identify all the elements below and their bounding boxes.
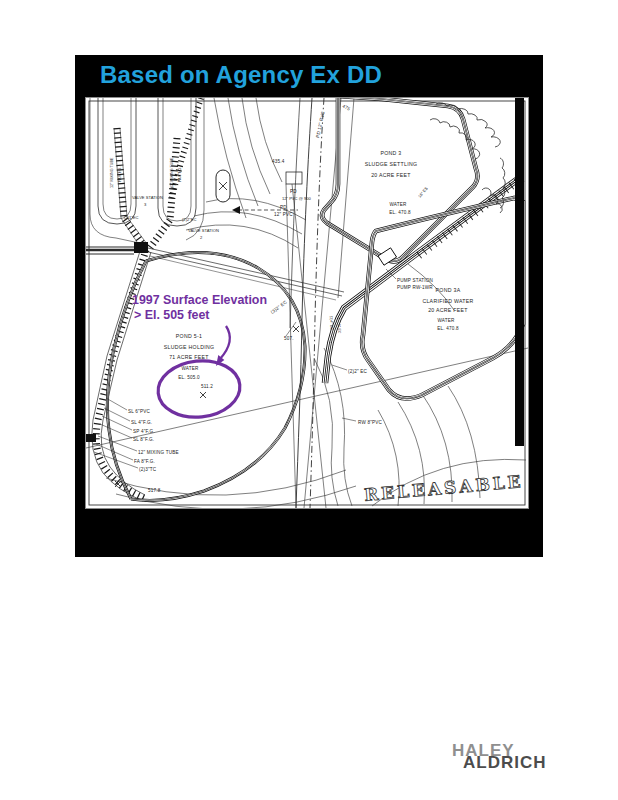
pond3-name-label: POND 3 [380,150,401,156]
pond51-water-label: WATER [181,366,199,371]
rw8pvc-label: RW 8"PVC [358,420,383,425]
es16-label: 16" ES [417,186,429,199]
pond3a-capacity-label: 20 ACRE FEET [428,307,468,313]
ec22-label: (2)2"EC [182,217,196,222]
valve-station-2-number: 2 [200,235,203,240]
ec21-label: (2)1"EC [124,215,138,220]
cell1-mixing-tube-label: 12" MIXING TUBE [110,157,114,188]
pipe-sl6-label: SL 6"PVC [128,409,150,414]
pond3-water-label: WATER [389,202,407,207]
spot-507-label: 507. [284,336,294,341]
pond51-spot-elevation-label: 511.2 [201,384,213,389]
releasable-stamp: RELEASABLE [363,471,524,505]
pd-box-label: PD [290,189,297,194]
pd-12pvc-label: 12" PVC [274,212,293,217]
contour-475-label: 475 [342,103,352,111]
site-plan-map: POND 3 SLUDGE SETTLING 20 ACRE FEET WATE… [85,97,529,509]
pipe-sl4-label: SL 4"F.G. [131,420,152,425]
pond51-elevation-label: EL. 505.0 [178,375,200,380]
logo-line2: ALDRICH [463,754,547,771]
ec1-label: 1" EC [337,324,341,334]
valve-junction [86,242,344,300]
cell1-fa8-label: FA 8"F.G. [118,167,122,182]
pipe-sl8-label: SL 8"F.G. [133,437,154,442]
haley-aldrich-logo: HALEY ALDRICH [452,742,547,771]
annotation-line2: > El. 505 feet [134,308,209,322]
spot-5178-label: 517.8 [148,488,161,493]
valve-station-2-label: VALVE STATION [188,228,219,233]
pd-12pvc900-label: 12" PVC @ 900 [282,196,312,201]
pond3-elevation-label: EL. 470.8 [389,210,411,215]
slide-title: Based on Agency Ex DD [100,61,382,89]
pd-label: PD [280,205,287,210]
pd-vertical-label: PD 12" PVC [315,110,326,138]
pond51-type-label: SLUDGE HOLDING [164,344,215,350]
ec32-label: (3)2" EC [270,299,289,315]
ec24-label: (2)4" EC [329,316,333,330]
pipe-fa8-label: FA 8"F.G. [134,459,155,464]
pond3a-water-label: WATER [437,318,455,323]
page: Based on Agency Ex DD [0,0,618,800]
cell2-mixing-tube-label: 12" MIXING TUBE [170,157,174,188]
pump-station-label-1: PUMP STATION [397,278,433,283]
pond51-capacity-label: 71 ACRE FEET [169,354,209,360]
pond3-outline [322,98,477,261]
annotation-line1: 1997 Surface Elevation [132,293,267,307]
pipe-mixing-tube-label: 12" MIXING TUBE [138,450,179,455]
mixing-cells [90,98,204,244]
slide: Based on Agency Ex DD [75,55,543,557]
scan-artifacts [86,98,524,446]
pond3-capacity-label: 20 ACRE FEET [371,172,411,178]
site-plan-drawing: POND 3 SLUDGE SETTLING 20 ACRE FEET WATE… [86,98,528,508]
pipe-sp4-label: SP 4"F.G. [133,429,155,434]
pipe-tc-label: (2)3"TC [139,467,157,472]
pond3a-type-label: CLARIFIED WATER [422,298,473,304]
annotation-circle [155,357,242,421]
flow-marker [216,170,230,202]
spot-4354-label: 435.4 [272,159,285,164]
pond3a-elevation-label: EL. 470.8 [437,326,459,331]
valve-station-3-number: 3 [144,202,147,207]
cell2-fa8-label: FA 8"F.G. [178,167,182,182]
pond51-name-label: POND 5-1 [176,333,202,339]
pond3a-name-label: POND 3A [436,287,461,293]
ec22b-label: (2)2" EC [348,369,368,374]
annotation-arrow [220,326,230,359]
valve-station-3-label: VALVE STATION [132,195,163,200]
pump-station-label-2: PUMP RW-1WR [397,285,433,290]
pond3-type-label: SLUDGE SETTLING [365,161,418,167]
